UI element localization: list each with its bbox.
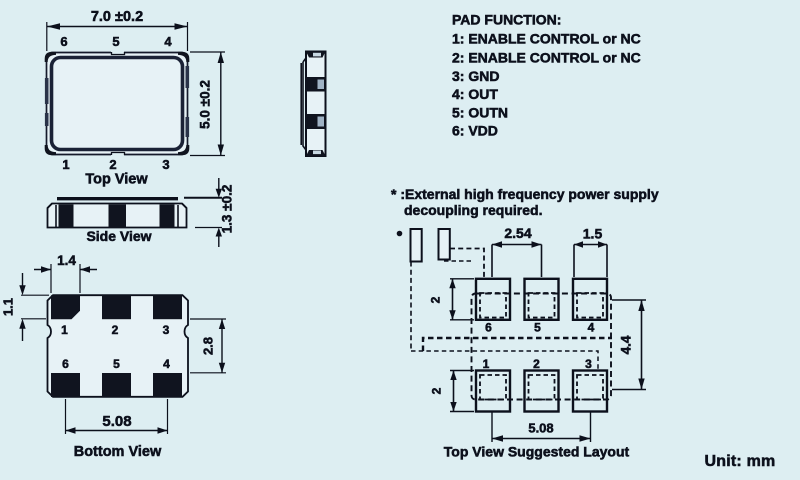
svg-text:2: 2 xyxy=(112,323,119,337)
svg-text:6: 6 xyxy=(60,34,67,49)
svg-text:2: 2 xyxy=(533,357,540,371)
svg-text:1.1: 1.1 xyxy=(1,298,16,316)
svg-text:5: OUTN: 5: OUTN xyxy=(452,105,508,121)
svg-text:7.0 ±0.2: 7.0 ±0.2 xyxy=(91,9,143,25)
svg-text:1: 1 xyxy=(483,357,490,371)
svg-text:1: 1 xyxy=(62,157,69,172)
svg-text:6: VDD: 6: VDD xyxy=(452,123,498,139)
svg-text:3: 3 xyxy=(585,357,592,371)
svg-text:2: ENABLE CONTROL or NC: 2: ENABLE CONTROL or NC xyxy=(452,50,641,66)
svg-text:Top View: Top View xyxy=(85,172,148,188)
svg-text:2: 2 xyxy=(430,387,444,394)
svg-text:4: 4 xyxy=(588,321,595,335)
svg-text:5: 5 xyxy=(112,34,119,49)
svg-text:4: 4 xyxy=(164,34,172,49)
svg-text:2: 2 xyxy=(109,157,116,172)
svg-text:1.4: 1.4 xyxy=(57,253,76,268)
svg-text:6: 6 xyxy=(62,357,69,371)
svg-text:1.3 ±0.2: 1.3 ±0.2 xyxy=(220,185,235,234)
svg-text:4: OUT: 4: OUT xyxy=(452,86,498,102)
svg-text:1.5: 1.5 xyxy=(583,226,603,242)
svg-text:3: 3 xyxy=(163,323,170,337)
svg-text:2: 2 xyxy=(429,296,443,303)
svg-text:* :External high frequency pow: * :External high frequency power supply xyxy=(391,186,659,202)
svg-text:Unit: mm: Unit: mm xyxy=(705,453,776,470)
svg-text:1: ENABLE CONTROL or NC: 1: ENABLE CONTROL or NC xyxy=(452,31,641,47)
svg-text:2.54: 2.54 xyxy=(504,225,531,241)
svg-text:5: 5 xyxy=(534,321,541,335)
svg-text:2.8: 2.8 xyxy=(201,337,216,355)
svg-text:3: GND: 3: GND xyxy=(452,68,499,84)
svg-text:5: 5 xyxy=(113,357,120,371)
svg-text:6: 6 xyxy=(485,321,492,335)
svg-text:4.4: 4.4 xyxy=(619,335,634,354)
svg-text:1: 1 xyxy=(61,323,68,337)
svg-text:5.08: 5.08 xyxy=(528,421,553,436)
svg-text:PAD FUNCTION:: PAD FUNCTION: xyxy=(452,12,561,28)
svg-text:decoupling required.: decoupling required. xyxy=(404,202,542,218)
svg-text:Side View: Side View xyxy=(86,228,151,244)
svg-text:5.08: 5.08 xyxy=(102,413,131,430)
svg-text:Top View Suggested Layout: Top View Suggested Layout xyxy=(444,444,630,460)
svg-text:5.0 ±0.2: 5.0 ±0.2 xyxy=(198,80,213,129)
svg-text:4: 4 xyxy=(163,357,170,371)
svg-text:Bottom View: Bottom View xyxy=(74,444,162,460)
svg-text:3: 3 xyxy=(162,157,169,172)
